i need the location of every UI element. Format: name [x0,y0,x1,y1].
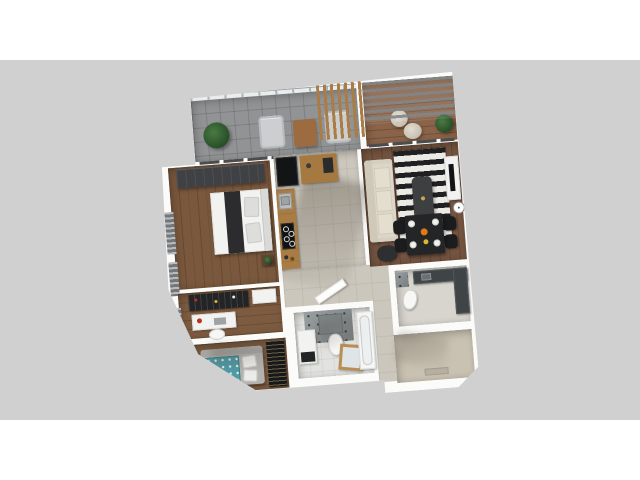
sofa-cushion [375,190,393,212]
tv-cabinet [444,156,461,201]
tv [448,164,455,191]
coffee-grinder [306,163,311,168]
white-appliance-box [252,288,277,304]
plate [408,220,416,228]
vanity-niche [301,351,316,362]
dining-table [404,213,445,256]
pillow [241,354,257,368]
desk-tray [214,317,227,325]
vanity-desk [191,311,236,330]
room-bathroom [294,307,375,379]
plate [432,218,440,226]
wall-clock [452,201,465,214]
tall-fridge-unit [275,156,298,187]
bean-bag-pouf [403,122,422,139]
dotted-accent-wall [395,272,409,288]
pergola-slat-roof [362,76,456,125]
pillow [245,222,262,244]
slatted-wardrobe [266,340,288,387]
food-bowl-yellow [423,239,428,244]
food-bowl-orange [420,228,428,236]
dining-chair [444,234,458,249]
double-bed [210,189,273,255]
bed-runner [224,191,245,254]
washbasin [209,328,226,340]
pillow [243,369,257,381]
sofa-cushion [374,167,392,189]
potted-plant [202,121,230,149]
cast-shadow [395,332,448,368]
room-master-bedroom [168,160,279,290]
dark-counter-return [453,267,471,314]
plate [433,239,441,247]
counter-jar [290,257,294,261]
plate [409,241,417,249]
room-entrance [394,329,476,383]
burner [289,241,295,247]
door-mat [424,367,448,376]
red-kettle [197,318,202,323]
sliding-wardrobe [176,164,265,189]
bathtub [356,311,377,370]
bottle-top [232,295,235,298]
counter-jar [284,255,288,259]
bottle-top [214,300,217,303]
shower-panel [318,313,343,335]
cooktop [281,223,296,250]
wood-side-table [293,119,318,148]
lounge-chair [258,115,285,149]
headboard [260,189,273,251]
vanity-unit [297,329,318,364]
pillow [244,197,259,217]
sink-basin [280,196,290,206]
room-dressing [178,286,283,340]
wood-slat-pergola-screen [316,79,366,140]
toilet [401,289,418,311]
bottle-top [194,298,197,301]
tub-basin [359,315,373,366]
room-wc [395,265,471,326]
burner [288,231,294,237]
room-terrace [362,76,458,147]
dining-chair [443,216,457,231]
wood-cabinet [299,153,338,184]
coffee-machine [323,157,334,173]
table-decor-gold [421,196,425,200]
counter-basin [421,273,432,281]
screenshot-canvas [0,0,640,480]
steel-sink [278,193,292,210]
dark-sideboard [188,290,249,311]
room-living [361,142,467,267]
